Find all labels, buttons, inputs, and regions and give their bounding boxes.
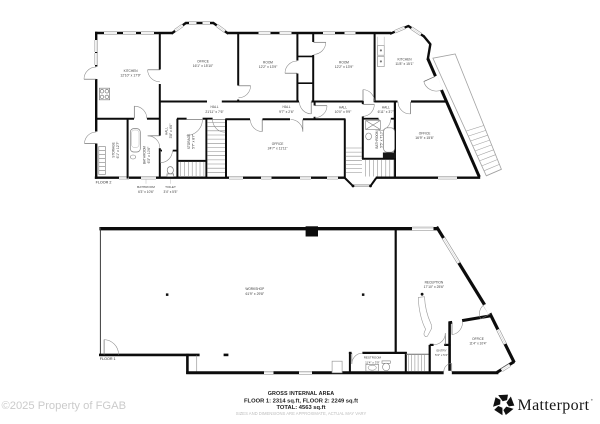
svg-text:6'3" x 10'6": 6'3" x 10'6"	[147, 146, 151, 164]
svg-text:24'7" x 11'11": 24'7" x 11'11"	[268, 147, 289, 151]
svg-text:ROOM: ROOM	[339, 60, 349, 64]
svg-text:9'7" x 2'6": 9'7" x 2'6"	[279, 110, 295, 114]
svg-text:12'10" x 17'9": 12'10" x 17'9"	[120, 73, 141, 77]
svg-text:ROOM: ROOM	[263, 60, 273, 64]
svg-text:KITCHEN: KITCHEN	[398, 57, 413, 61]
svg-text:RESTROOM: RESTROOM	[364, 356, 382, 360]
svg-text:HALL: HALL	[382, 106, 390, 110]
svg-text:BATHROOM: BATHROOM	[143, 146, 147, 165]
svg-text:HALL: HALL	[283, 105, 291, 109]
svg-text:OFFICE: OFFICE	[197, 59, 209, 63]
svg-text:16'1" x 15'10": 16'1" x 15'10"	[193, 64, 214, 68]
svg-text:STORAGE: STORAGE	[187, 134, 191, 150]
svg-text:OFFICE: OFFICE	[472, 337, 484, 341]
svg-text:5'5" x 7'10": 5'5" x 7'10"	[380, 130, 384, 148]
svg-text:12'2" x 13'9": 12'2" x 13'9"	[259, 65, 278, 69]
svg-text:ENTRY: ENTRY	[437, 348, 447, 352]
svg-text:FLOOR 2: FLOOR 2	[96, 180, 112, 184]
svg-text:TOILET: TOILET	[165, 185, 176, 189]
svg-text:21'11" x 7'6": 21'11" x 7'6"	[205, 110, 224, 114]
svg-text:6'1" x 12'7": 6'1" x 12'7"	[116, 141, 120, 159]
svg-text:6'3" x 10'6": 6'3" x 10'6"	[138, 190, 154, 194]
svg-text:16'9" x 15'6": 16'9" x 15'6"	[415, 136, 434, 140]
svg-text:Matterport: Matterport	[518, 397, 590, 414]
svg-text:11'4" x 10'4": 11'4" x 10'4"	[469, 342, 486, 346]
svg-text:11'4" x 3'9": 11'4" x 3'9"	[365, 360, 380, 364]
svg-text:HALL: HALL	[164, 127, 168, 135]
svg-text:61'9" x 29'8": 61'9" x 29'8"	[245, 292, 264, 296]
svg-text:HALL: HALL	[339, 106, 347, 110]
svg-text:17'10" x 25'6": 17'10" x 25'6"	[424, 285, 445, 289]
svg-text:11'8" x 15'1": 11'8" x 15'1"	[395, 62, 414, 66]
svg-text:©2025 Property of FGAB: ©2025 Property of FGAB	[2, 400, 127, 412]
svg-text:STORAGE: STORAGE	[112, 142, 116, 158]
svg-text:3'8" x 4'6": 3'8" x 4'6"	[169, 123, 173, 139]
svg-text:FLOOR 1: FLOOR 1	[100, 357, 116, 361]
svg-text:FLOOR 1: 2314 sq.ft, FLOOR 2:: FLOOR 1: 2314 sq.ft, FLOOR 2: 2249 sq.ft	[244, 399, 358, 405]
svg-text:6'11" x 3'7": 6'11" x 3'7"	[378, 110, 395, 114]
svg-text:KITCHEN: KITCHEN	[124, 69, 139, 73]
svg-text:5'7" x 8'7": 5'7" x 8'7"	[191, 133, 195, 149]
svg-text:OFFICE: OFFICE	[272, 142, 284, 146]
svg-text:RECEPTION: RECEPTION	[425, 280, 444, 284]
svg-text:WORKSHOP: WORKSHOP	[245, 287, 264, 291]
svg-text:10'0" x 9'9": 10'0" x 9'9"	[335, 110, 353, 114]
svg-text:5'4" x 5'4": 5'4" x 5'4"	[435, 353, 448, 357]
svg-text:BATHROOM: BATHROOM	[137, 185, 155, 189]
svg-text:3'4" x 5'5": 3'4" x 5'5"	[164, 190, 178, 194]
svg-text:SIZES AND DIMENSIONS ARE APPRO: SIZES AND DIMENSIONS ARE APPROXIMATE, AC…	[236, 411, 367, 416]
svg-text:12'2" x 13'9": 12'2" x 13'9"	[335, 65, 354, 69]
svg-text:HALL: HALL	[211, 105, 219, 109]
svg-text:OFFICE: OFFICE	[419, 132, 431, 136]
svg-text:GROSS INTERNAL AREA: GROSS INTERNAL AREA	[268, 391, 335, 397]
svg-text:BATHROOM: BATHROOM	[375, 130, 379, 149]
